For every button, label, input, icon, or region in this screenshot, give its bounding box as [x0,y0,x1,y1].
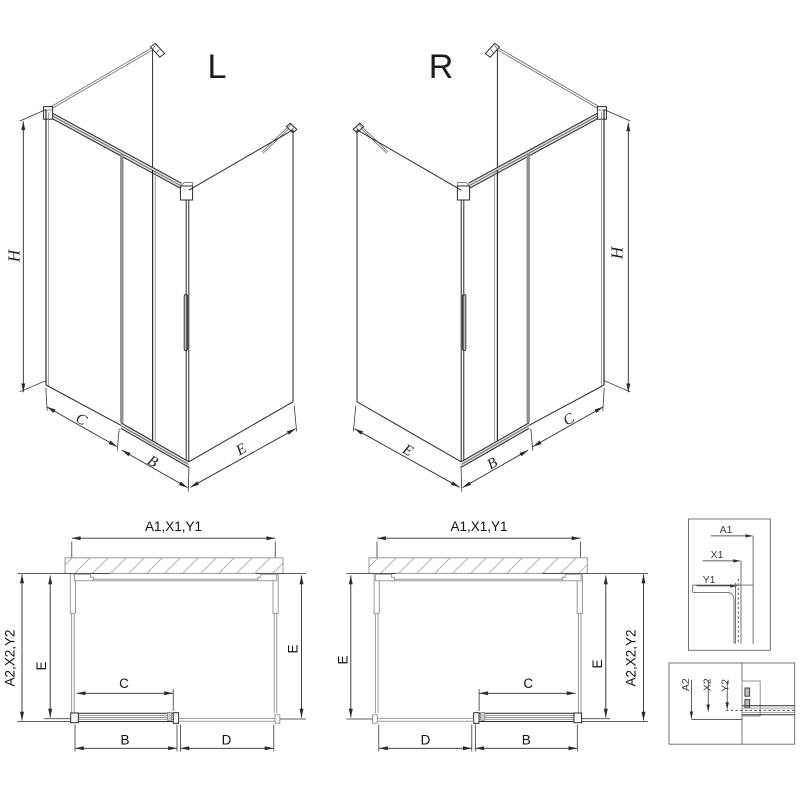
corner-bar-left [376,574,395,580]
panel-end-cap [275,715,280,723]
dim-label-H: H [608,245,627,260]
rail-end-block-right [597,107,606,120]
corner-bar-left [75,574,94,580]
dim-label-C: C [119,676,129,691]
corner-bar-right [562,574,581,580]
dim-label-A2: A2 [680,678,692,691]
shower-enclosure-drawing: L [0,0,800,800]
dim-label-A1X1Y1: A1,X1,Y1 [145,519,202,534]
dim-label-B: B [522,733,531,748]
dim-label-E-left: E [34,661,49,670]
rail-end-block-left [44,107,53,120]
wall-bracket-section [742,681,760,716]
panel-end-cap [373,715,378,723]
technical-drawing-page: L [0,0,800,800]
dim-label-A1: A1 [720,524,733,536]
dim-label-E-right: E [590,659,605,668]
dim-label-D: D [222,733,232,748]
rail-end-block-right [180,186,192,200]
dim-label-E-right: E [286,644,301,653]
dim-label-E-left: E [336,655,351,664]
dim-label-A2X2Y2: A2,X2,Y2 [3,629,18,686]
dim-label-B: B [120,733,129,748]
view-label-right: R [429,48,454,86]
dim-label-Y2: Y2 [720,679,732,692]
view-label-left: L [208,48,227,86]
track-end-block [574,713,582,723]
dim-label-X1: X1 [711,549,724,561]
dim-label-Y1: Y1 [703,574,716,586]
track-end-block [173,713,178,724]
rail-end-block-left [457,186,469,200]
door-stopper [168,713,172,721]
dim-label-D: D [421,733,431,748]
dim-label-C: C [523,676,533,691]
track-end-block [474,713,479,724]
dim-label-A1X1Y1: A1,X1,Y1 [450,519,507,534]
dim-label-A2X2Y2: A2,X2,Y2 [624,629,639,686]
door-stopper [481,713,485,721]
wall-section [65,558,283,574]
dim-label-H: H [5,248,24,263]
wall-section [369,558,587,574]
dim-label-X2: X2 [701,678,713,691]
track-end-block [71,713,79,723]
corner-bar-right [258,574,277,580]
